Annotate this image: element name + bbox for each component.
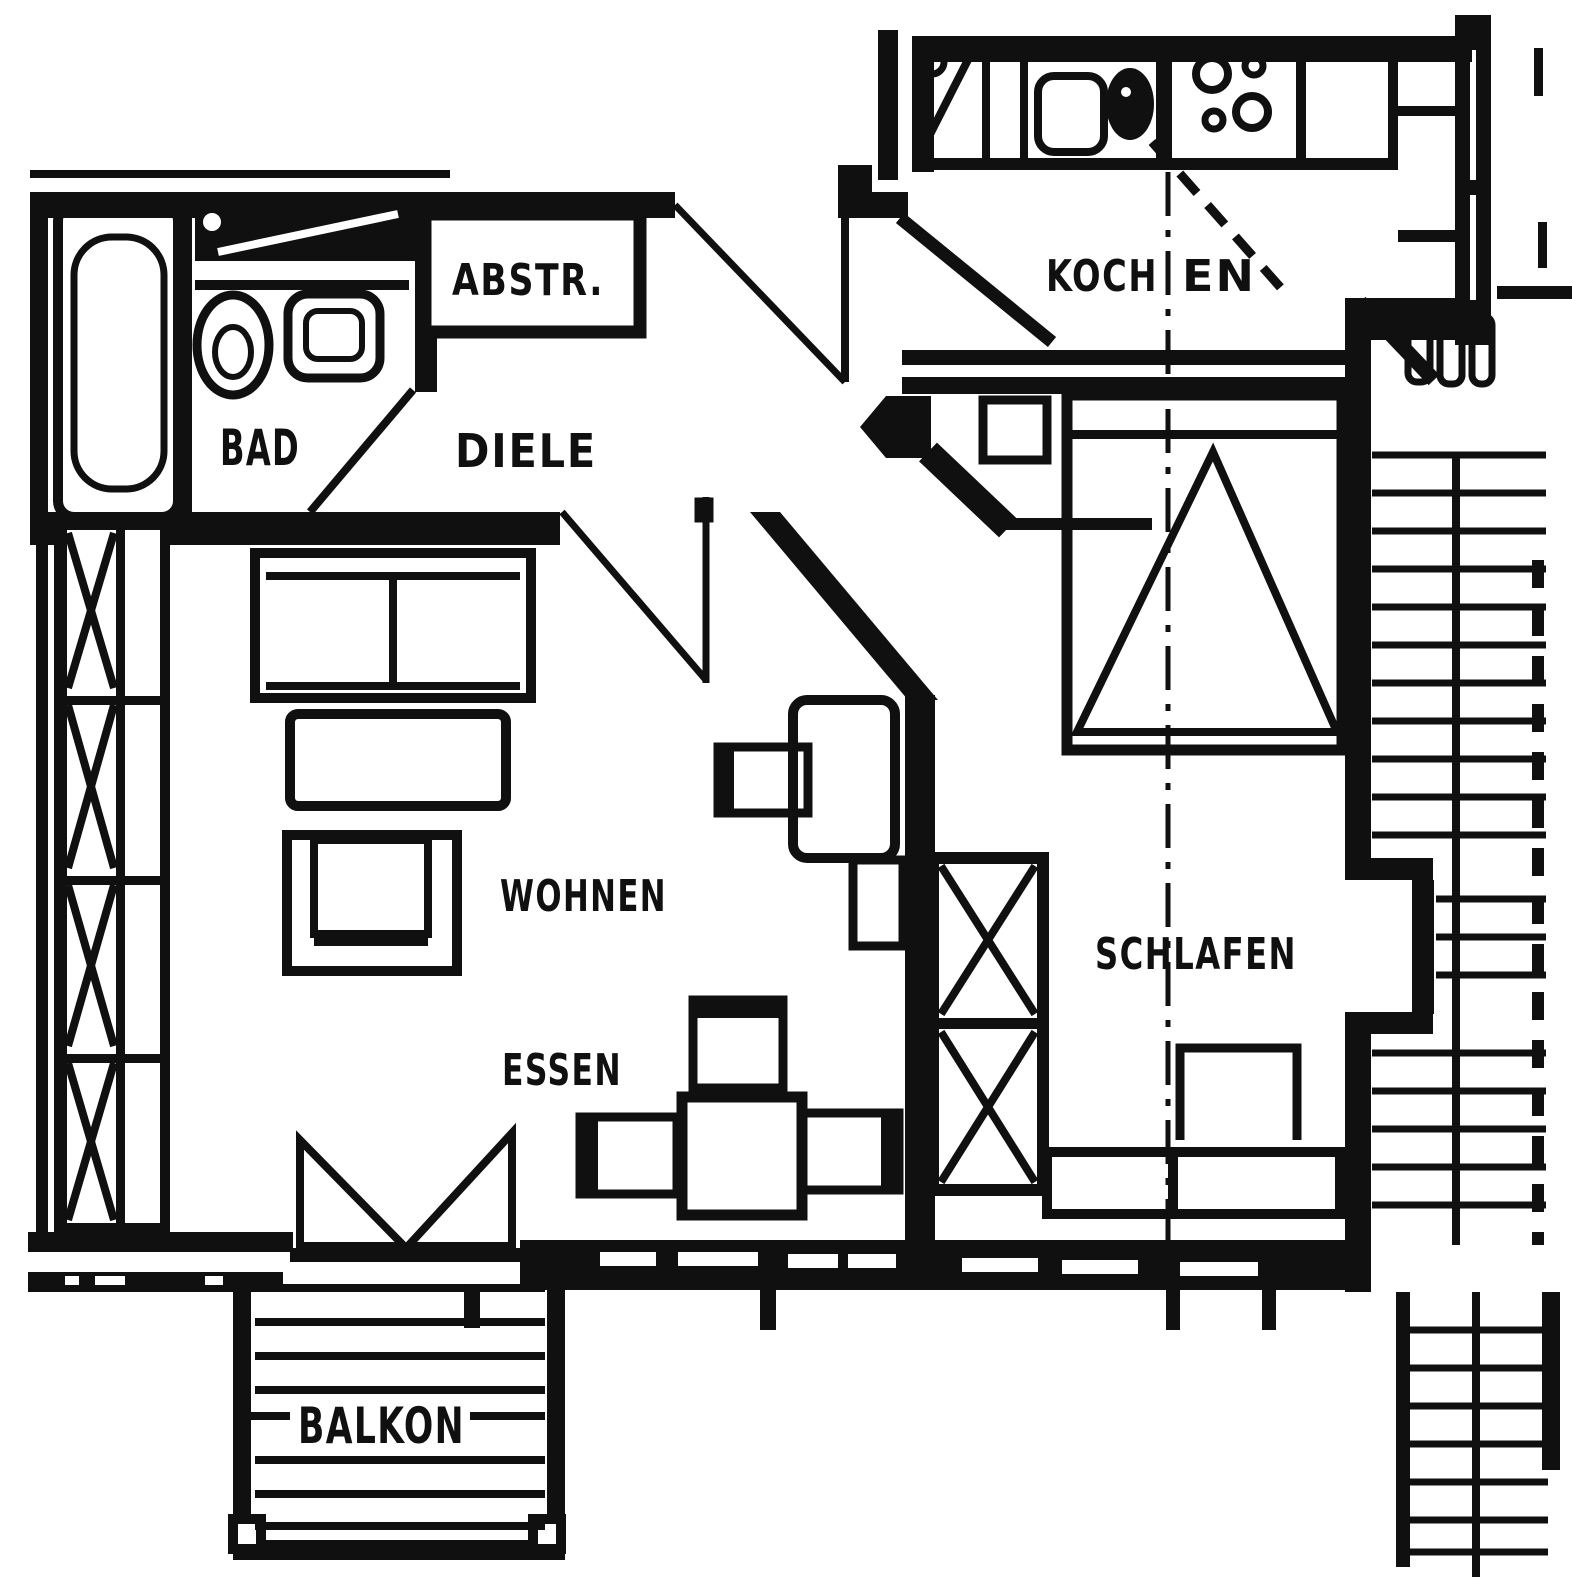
stair-lower-wall [1396, 1292, 1410, 1567]
label-wohnen: WOHNEN [500, 871, 667, 922]
bottom-speckle-2 [95, 1276, 125, 1285]
balcony-threshold [290, 1248, 522, 1262]
counter-divider-2 [1020, 36, 1028, 170]
window-slit-3 [788, 1254, 838, 1268]
bottom-post-3 [1166, 1290, 1180, 1330]
faucet-dot [1121, 87, 1131, 97]
entry-wall-stub [858, 192, 908, 218]
counter-divider-5 [1388, 36, 1398, 170]
shelf-unit-hdivider-3 [62, 1054, 165, 1063]
counter-divider-4 [1296, 36, 1306, 170]
bad-shelf-line [195, 280, 409, 290]
label-schlafen: SCHLAFEN [1095, 929, 1297, 980]
sideboard-divider [1168, 1152, 1178, 1214]
wardrobe-divider [933, 1018, 1043, 1029]
washing-machine-knob [203, 213, 221, 231]
label-diele: DIELE [455, 424, 597, 478]
east-tick-2 [1538, 222, 1547, 268]
kitchen-faucet-icon [1106, 68, 1154, 140]
schlafen-niche-top [1345, 858, 1433, 880]
stair-lower-right-band [1542, 1292, 1560, 1470]
balcony-post-left-hole [238, 1524, 256, 1544]
bad-west-wall [30, 192, 48, 525]
bottom-speckle-1 [65, 1276, 79, 1285]
bottom-wall-west-1 [28, 1232, 293, 1252]
window-slit-1 [600, 1252, 656, 1266]
dining-chair-left-back [580, 1117, 598, 1194]
window-slit-6 [1062, 1260, 1138, 1274]
floorplan-svg: BAD ABSTR. DIELE KOCH EN WOHNEN ESSEN SC… [0, 0, 1572, 1577]
stair-lower-center [1472, 1292, 1480, 1577]
counter-divider-1 [982, 36, 990, 170]
shelf-unit-hdivider-1 [62, 696, 165, 705]
west-outer-wall [36, 525, 48, 1248]
shelf-unit-icon [62, 525, 165, 1228]
right-counter-divider-1 [1398, 106, 1456, 116]
armchair-front-band [314, 936, 428, 946]
label-abstellraum: ABSTR. [452, 255, 604, 306]
label-kochen-left: KOCH [1046, 251, 1158, 302]
label-kochen-right: EN [1182, 251, 1256, 302]
sofa-front-line [266, 682, 520, 690]
east-tick-1 [1534, 48, 1543, 96]
schlafen-east-wall-upper [1345, 298, 1371, 860]
east-wall-slit-2 [1470, 195, 1476, 300]
balcony-east-wall [547, 1252, 565, 1558]
right-counter-divider-2 [1398, 230, 1456, 242]
top-thin-line [30, 170, 450, 178]
east-stub-line [1497, 286, 1572, 299]
kitchen-west-bar [878, 30, 898, 180]
wohnen-door-cap [695, 498, 713, 522]
schlafen-niche-bottom [1345, 1012, 1433, 1034]
bed-headboard-line [1067, 430, 1342, 439]
bad-partition [180, 216, 192, 518]
balcony-south-wall [233, 1540, 565, 1560]
desk-chair-back [718, 747, 734, 813]
label-bad: BAD [220, 419, 300, 477]
sofa-cushion-divider [389, 578, 397, 684]
label-balkon: BALKON [298, 1397, 465, 1455]
kitchen-south-wall-1 [902, 350, 1352, 365]
dining-chair-top-back [693, 1000, 783, 1018]
floorplan-scan: BAD ABSTR. DIELE KOCH EN WOHNEN ESSEN SC… [0, 0, 1572, 1577]
schlafen-niche-east [1412, 880, 1434, 1014]
label-essen: ESSEN [502, 1045, 622, 1096]
bottom-post-4 [1262, 1290, 1276, 1330]
window-slit-7 [1180, 1262, 1258, 1276]
counter-divider-3 [1156, 36, 1172, 170]
stair-center-rail [1452, 455, 1460, 1245]
window-slit-4 [848, 1254, 896, 1268]
bottom-speckle-3 [205, 1276, 223, 1285]
dining-chair-right-back [881, 1113, 899, 1190]
window-slit-5 [962, 1258, 1038, 1272]
schlafen-door-leaf [1002, 518, 1152, 530]
east-wall-slit-1 [1470, 50, 1476, 180]
window-slit-2 [678, 1252, 758, 1266]
bottom-post-2 [760, 1290, 776, 1330]
shelf-unit-hdivider-2 [62, 876, 165, 885]
